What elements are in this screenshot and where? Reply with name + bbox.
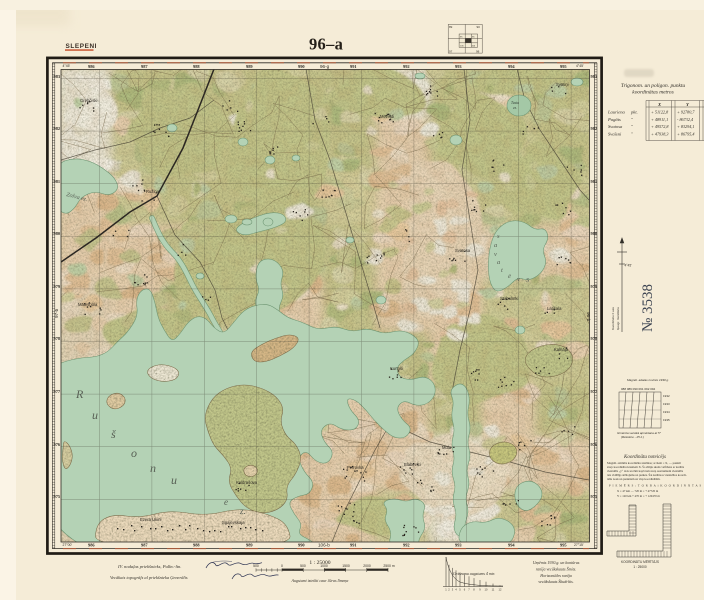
svg-text:Ezera Ukini: Ezera Ukini <box>140 517 161 522</box>
svg-text:n: n <box>150 461 156 475</box>
svg-text:992: 992 <box>403 64 410 69</box>
svg-text:Grebčiski: Grebčiski <box>80 98 98 103</box>
svg-text:977: 977 <box>591 389 598 394</box>
svg-text:106-b: 106-b <box>318 543 330 548</box>
svg-text:977: 977 <box>54 389 61 394</box>
svg-text:1932: 1932 <box>663 394 670 398</box>
svg-text:Kaldrašova: Kaldrašova <box>236 480 258 485</box>
svg-text:Kalnāja: Kalnāja <box>554 347 569 352</box>
svg-text:987: 987 <box>141 543 148 548</box>
svg-text:979: 979 <box>591 284 598 289</box>
svg-text:27°15': 27°15' <box>574 543 584 547</box>
svg-text:991: 991 <box>350 543 357 548</box>
svg-text:Latišala: Latišala <box>547 306 562 311</box>
svg-text:96–a: 96–a <box>309 35 343 54</box>
svg-text:90: 90 <box>477 25 481 29</box>
svg-text:": " <box>631 117 633 122</box>
svg-text:988: 988 <box>193 64 200 69</box>
svg-text:2000: 2000 <box>363 564 371 568</box>
svg-text:ranīja vecākskauts Šmits.: ranīja vecākskauts Šmits. <box>536 566 577 571</box>
svg-text:SLEPENI: SLEPENI <box>66 43 98 50</box>
svg-text:e: e <box>224 497 228 507</box>
svg-text:983: 983 <box>591 74 598 79</box>
svg-text:Augstumi izteikti caur Jūras l: Augstumi izteikti caur Jūras līmeņa <box>291 578 349 583</box>
svg-text:0: 0 <box>281 564 283 568</box>
svg-text:Pagāts: Pagāts <box>607 117 621 122</box>
svg-text:993: 993 <box>455 64 462 69</box>
svg-text:992: 992 <box>403 543 410 548</box>
svg-text:Ružina: Ružina <box>146 189 160 194</box>
svg-text:Trigonom. un poligon. punktu: Trigonom. un poligon. punktu <box>621 83 686 89</box>
svg-text:98: 98 <box>476 50 480 54</box>
svg-text:995: 995 <box>560 64 567 69</box>
svg-text:o: o <box>131 446 137 460</box>
svg-text:980: 980 <box>54 231 61 236</box>
svg-text:976: 976 <box>54 442 61 447</box>
svg-text:981: 981 <box>591 179 598 184</box>
svg-text:4°45': 4°45' <box>63 64 71 68</box>
svg-text:KOORDINĀTU MĒRĪTĀJS: KOORDINĀTU MĒRĪTĀJS <box>621 560 659 564</box>
svg-text:500: 500 <box>300 564 306 568</box>
svg-text:1933: 1933 <box>663 402 670 406</box>
svg-text:981: 981 <box>54 179 61 184</box>
svg-text:983: 983 <box>54 74 61 79</box>
svg-text:vecākskauts Škudrītis.: vecākskauts Škudrītis. <box>538 579 573 584</box>
svg-text:89: 89 <box>449 25 453 29</box>
svg-text:Svatosa: Svatosa <box>608 124 623 129</box>
svg-text:1000: 1000 <box>320 564 328 568</box>
svg-text:988: 988 <box>193 543 200 548</box>
svg-text:pkt.: pkt. <box>630 110 638 115</box>
svg-text:1935: 1935 <box>663 418 670 422</box>
svg-text:989: 989 <box>246 543 253 548</box>
svg-text:Koordinātu X ass: Koordinātu X ass <box>611 307 615 330</box>
svg-text:994: 994 <box>508 543 515 548</box>
svg-text:989: 989 <box>246 64 253 69</box>
svg-text:Vecākais topogrāfs al priekšni: Vecākais topogrāfs al priekšnieka Ģenerā… <box>110 575 188 580</box>
svg-text:Griezumu augstums 4 mtr.: Griezumu augstums 4 mtr. <box>453 571 495 576</box>
svg-text:z.: z. <box>239 506 246 516</box>
svg-text:978: 978 <box>54 336 61 341</box>
svg-text:a: a <box>494 242 497 249</box>
svg-text:982: 982 <box>54 126 61 131</box>
svg-text:991: 991 <box>350 64 357 69</box>
svg-text:27°00': 27°00' <box>63 543 73 547</box>
svg-text:994: 994 <box>508 64 515 69</box>
svg-text:v: v <box>494 251 497 258</box>
svg-text:975: 975 <box>54 494 61 499</box>
svg-text:500: 500 <box>253 564 259 568</box>
svg-text:986: 986 <box>88 64 95 69</box>
svg-text:R: R <box>75 387 84 401</box>
svg-text:№ 3538: № 3538 <box>640 284 656 332</box>
svg-text:ez.: ez. <box>513 106 517 110</box>
svg-text:Ģeogr. meridiāns: Ģeogr. meridiāns <box>616 307 620 330</box>
svg-text:Kurtoši: Kurtoši <box>390 366 403 371</box>
svg-text:979: 979 <box>54 284 61 289</box>
svg-text:X = 47 km — 720 m = + 47720 m: X = 47 km — 720 m = + 47720 m <box>617 489 659 493</box>
svg-text:a: a <box>497 259 500 266</box>
svg-text:": " <box>631 131 633 136</box>
svg-text:97-b: 97-b <box>54 308 59 318</box>
svg-text:P I E M Ē R S : T O R Ņ A: P I E M Ē R S : T O R Ņ A i K O O R D I … <box>609 483 702 488</box>
svg-text:u: u <box>92 408 98 422</box>
svg-text:Magnēt. adatas novirze 1930 g.: Magnēt. adatas novirze 1930 g. <box>627 378 669 382</box>
svg-text:Lauriena: Lauriena <box>607 110 626 115</box>
svg-text:Stabulnīki: Stabulnīki <box>500 296 518 301</box>
svg-text:976: 976 <box>591 442 598 447</box>
svg-text:Horizontāles ranīja: Horizontāles ranīja <box>539 573 571 578</box>
svg-text:96-g: 96-g <box>320 64 330 69</box>
svg-text:1 : 25000: 1 : 25000 <box>633 565 647 569</box>
svg-text:koordinātas metros: koordinātas metros <box>632 90 673 96</box>
svg-text:(Rēzekne - 25 k.): (Rēzekne - 25 k.) <box>621 435 644 439</box>
svg-text:Blabevici: Blabevici <box>404 462 421 467</box>
svg-text:1500: 1500 <box>342 564 350 568</box>
svg-text:Y = 120 km + 470 m = + 120470: Y = 120 km + 470 m = + 120470 m <box>617 494 660 498</box>
svg-text:Koordinātu noteicējs: Koordinātu noteicējs <box>623 455 666 460</box>
svg-text:Uzņēmis 1930.g. un kontūras: Uzņēmis 1930.g. un kontūras <box>533 560 580 565</box>
svg-text:975: 975 <box>591 494 598 499</box>
svg-text:993: 993 <box>455 543 462 548</box>
svg-text:088 089 090 091 092 094: 088 089 090 091 092 094 <box>621 387 656 391</box>
svg-text:u: u <box>171 473 177 487</box>
svg-text:2500 m: 2500 m <box>383 564 394 568</box>
svg-text:990: 990 <box>298 64 305 69</box>
svg-text:982: 982 <box>591 126 598 131</box>
svg-text:Sgajevskaja: Sgajevskaja <box>222 520 245 525</box>
svg-text:990: 990 <box>298 543 305 548</box>
svg-text:t: t <box>501 267 503 274</box>
svg-text:1934: 1934 <box>663 410 670 414</box>
svg-text:96-b: 96-b <box>586 312 591 322</box>
svg-text:995: 995 <box>560 543 567 548</box>
svg-text:978: 978 <box>591 336 598 341</box>
svg-text:987: 987 <box>141 64 148 69</box>
svg-text:Mežvidi: Mežvidi <box>380 114 394 119</box>
svg-text:4°45': 4°45' <box>576 64 584 68</box>
svg-text:ē: ē <box>508 273 511 280</box>
svg-text:v: v <box>517 276 520 283</box>
svg-text:97: 97 <box>449 50 453 54</box>
svg-text:Mūla: Mūla <box>442 445 452 450</box>
svg-text:Svatosa: Svatosa <box>455 248 471 253</box>
svg-text:Svātiņi: Svātiņi <box>556 82 569 87</box>
svg-text:Tusta: Tusta <box>511 101 519 105</box>
svg-text:Petrovka: Petrovka <box>347 465 364 470</box>
svg-text:": " <box>631 124 633 129</box>
svg-text:Svaīsni: Svaīsni <box>608 131 622 136</box>
svg-text:980: 980 <box>591 231 598 236</box>
svg-text:Mātesgola: Mātesgola <box>78 302 98 307</box>
svg-text:986: 986 <box>88 543 95 548</box>
svg-text:4°45': 4°45' <box>625 264 633 268</box>
svg-text:nātu nosk un punktiem uz visp: nātu nosk un punktiem uz visp koordinātē… <box>607 477 661 481</box>
